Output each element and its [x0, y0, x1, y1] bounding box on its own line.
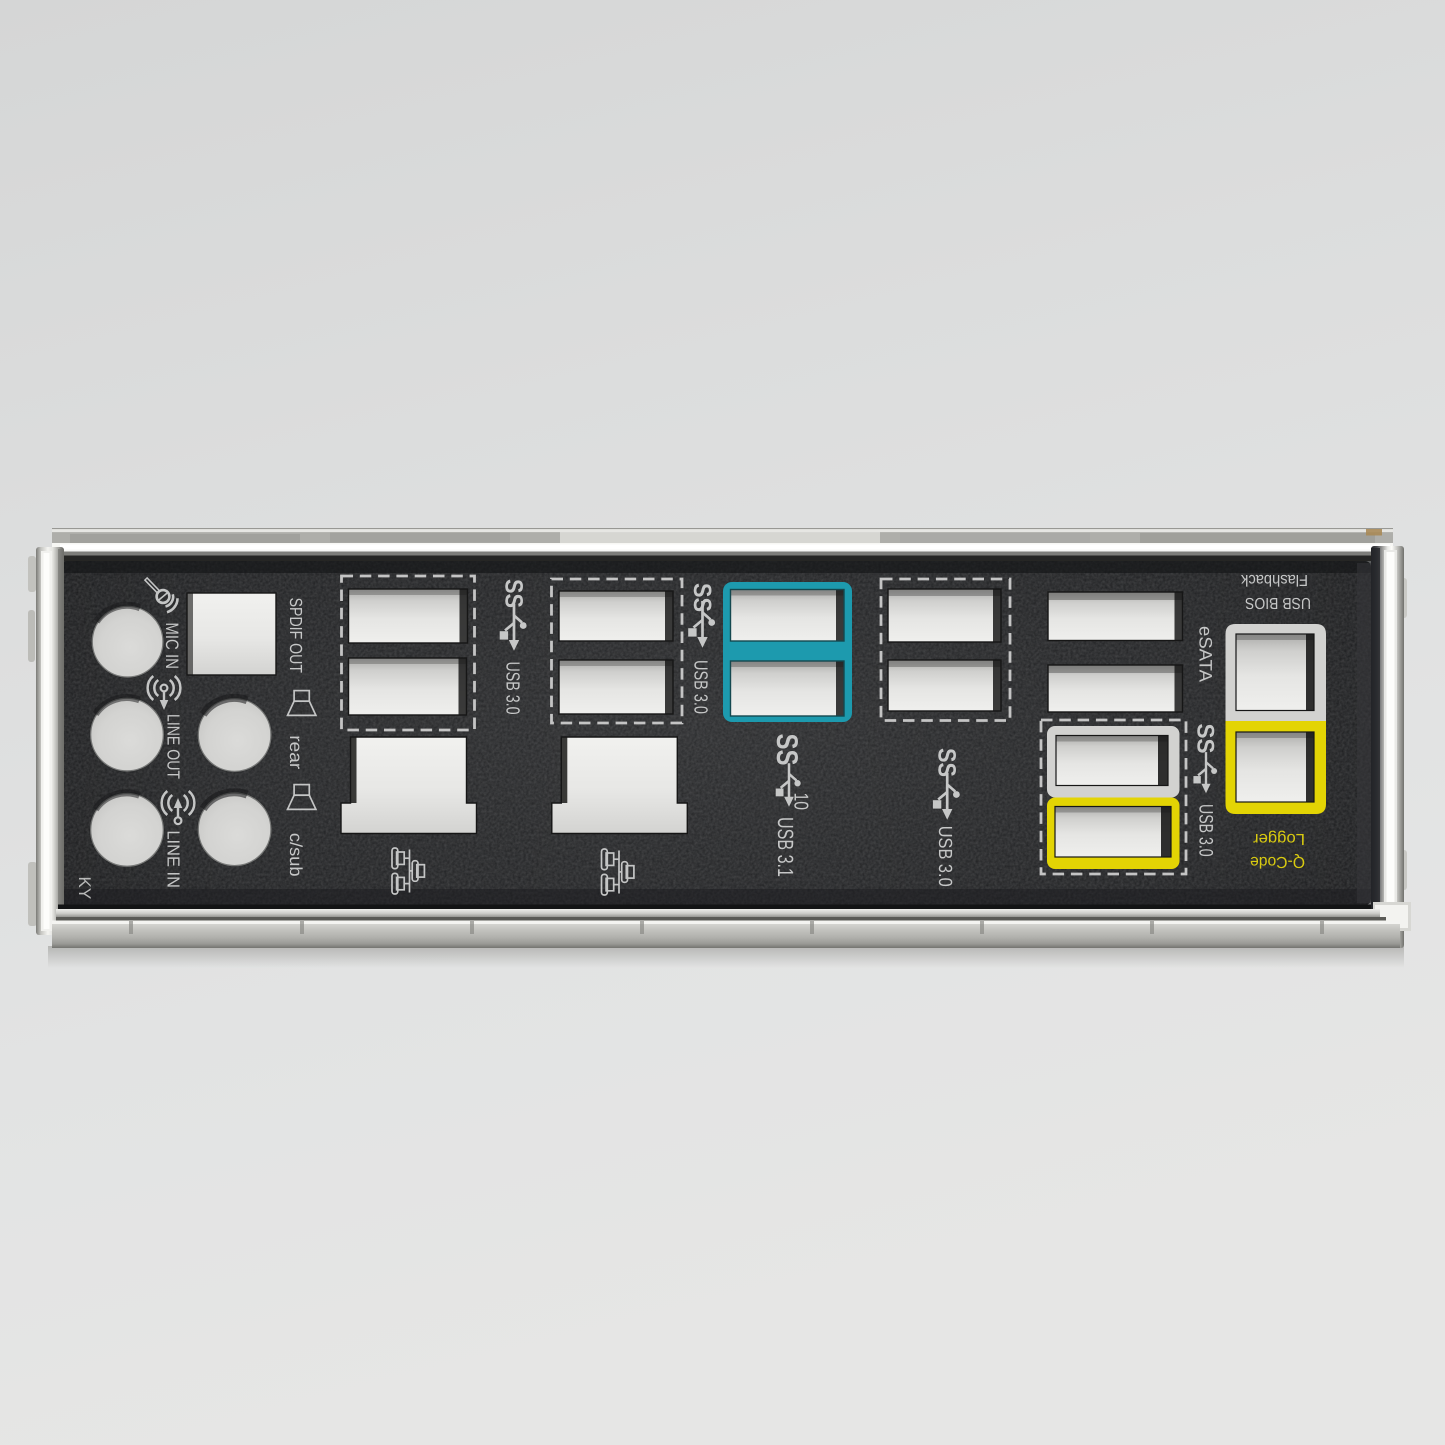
- svg-text:SS: SS: [770, 734, 803, 766]
- svg-text:rear: rear: [286, 735, 306, 769]
- svg-text:SS: SS: [1192, 724, 1219, 754]
- svg-text:Q-Code: Q-Code: [1250, 853, 1305, 870]
- svg-text:Logger: Logger: [1252, 830, 1305, 847]
- svg-text:USB 3.0: USB 3.0: [1194, 804, 1216, 857]
- svg-text:KY: KY: [75, 877, 94, 900]
- svg-text:USB 3.0: USB 3.0: [934, 826, 955, 887]
- svg-text:LINE OUT: LINE OUT: [164, 714, 184, 779]
- svg-text:10: 10: [790, 793, 812, 811]
- svg-text:MIC IN: MIC IN: [162, 622, 182, 669]
- svg-text:USB BIOS: USB BIOS: [1245, 594, 1311, 611]
- svg-text:c/sub: c/sub: [286, 833, 306, 877]
- svg-text:eSATA: eSATA: [1196, 626, 1216, 682]
- svg-text:USB 3.1: USB 3.1: [773, 817, 798, 877]
- svg-text:USB 3.0: USB 3.0: [502, 662, 523, 715]
- svg-text:SS: SS: [933, 748, 961, 777]
- svg-text:Flashback: Flashback: [1240, 571, 1308, 588]
- svg-text:SPDIF OUT: SPDIF OUT: [286, 598, 306, 674]
- svg-text:LINE IN: LINE IN: [164, 830, 184, 888]
- svg-text:USB 3.0: USB 3.0: [690, 660, 711, 714]
- svg-text:SS: SS: [500, 579, 528, 608]
